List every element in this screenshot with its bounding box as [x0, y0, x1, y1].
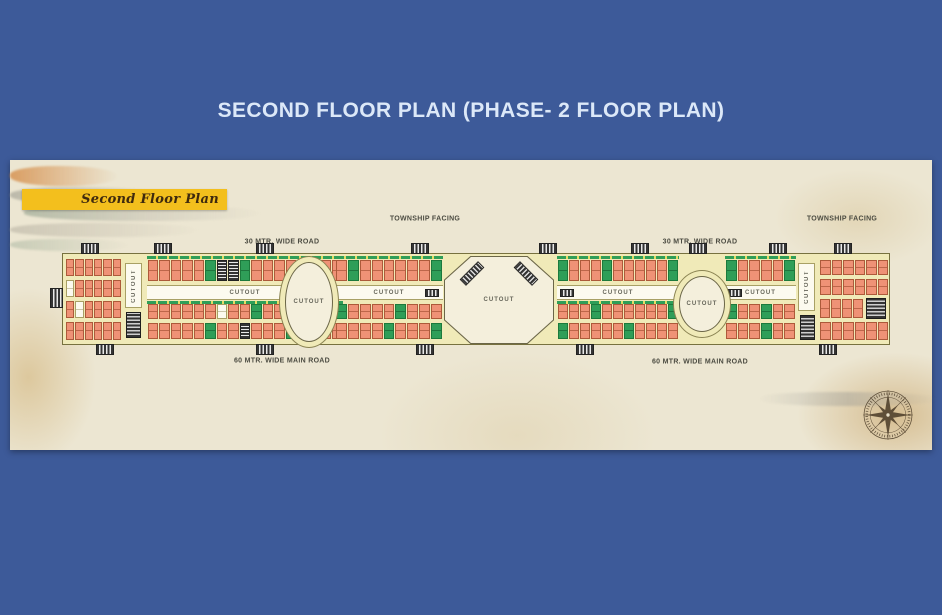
shop-unit: [182, 260, 192, 281]
shop-unit: [171, 323, 181, 339]
cutout-corridor: CUTOUT: [725, 285, 796, 300]
shop-unit: [820, 260, 831, 275]
shop-unit: [274, 323, 284, 339]
shop-band: [65, 300, 122, 319]
shop-unit: [407, 323, 418, 339]
shop-band: [557, 303, 679, 320]
cutout-label: CUTOUT: [131, 269, 137, 303]
shop-unit: [646, 323, 656, 339]
shop-unit: [761, 260, 772, 281]
shop-unit: [580, 323, 590, 339]
shop-unit: [75, 259, 83, 276]
shop-unit: [878, 322, 889, 340]
shop-unit: [726, 304, 737, 319]
shop-unit: [832, 260, 843, 275]
shop-unit: [395, 260, 406, 281]
shop-unit: [558, 260, 568, 281]
shop-unit: [103, 280, 111, 297]
shop-unit: [240, 323, 250, 339]
shop-band: [819, 259, 889, 276]
shop-unit: [94, 301, 102, 318]
shop-unit: [113, 301, 121, 318]
shop-unit: [228, 260, 238, 281]
shop-unit: [784, 260, 795, 281]
shop-unit: [726, 323, 737, 339]
watercolor-stroke: [10, 166, 118, 186]
shop-unit: [558, 323, 568, 339]
shop-band: [335, 259, 443, 282]
shop-unit: [602, 323, 612, 339]
shop-unit: [749, 323, 760, 339]
shop-unit: [103, 322, 111, 340]
shop-unit: [159, 323, 169, 339]
shop-unit: [113, 259, 121, 276]
shop-band: [819, 298, 864, 319]
shop-unit: [613, 304, 623, 319]
shop-unit: [580, 260, 590, 281]
shop-unit: [85, 322, 93, 340]
shop-unit: [217, 323, 227, 339]
shop-band: [725, 322, 796, 340]
shop-unit: [113, 322, 121, 340]
stair-core: [126, 312, 141, 338]
plan-title-text: Second Floor Plan: [81, 192, 219, 207]
shop-unit: [171, 260, 181, 281]
shop-unit: [591, 260, 601, 281]
shop-unit: [171, 304, 181, 319]
shop-unit: [228, 323, 238, 339]
shop-unit: [251, 260, 261, 281]
shop-unit: [372, 323, 383, 339]
shop-unit: [103, 301, 111, 318]
floor-plan-canvas: Second Floor Plan TOWNSHIP FACING TOWNSH…: [10, 160, 932, 450]
shop-unit: [761, 304, 772, 319]
passage-label-strip: [557, 256, 679, 259]
cutout-corridor: CUTOUT: [335, 285, 443, 300]
cutout-label: CUTOUT: [484, 297, 515, 303]
shop-unit: [657, 260, 667, 281]
cutout-label: CUTOUT: [745, 290, 776, 296]
shop-unit: [749, 304, 760, 319]
cutout-octagon: CUTOUT: [444, 256, 554, 344]
passage-label-strip: [335, 256, 443, 259]
stair-block-icon: [154, 243, 172, 254]
shop-unit: [66, 259, 74, 276]
cutout-label: CUTOUT: [294, 299, 325, 305]
stair-ramp-icon: [460, 261, 485, 286]
shop-unit: [384, 323, 395, 339]
shop-unit: [217, 304, 227, 319]
shop-unit: [384, 260, 395, 281]
shop-unit: [613, 260, 623, 281]
shop-unit: [832, 322, 843, 340]
stair-block-icon: [411, 243, 429, 254]
shop-unit: [66, 280, 74, 297]
shop-unit: [395, 304, 406, 319]
shop-unit: [761, 323, 772, 339]
shop-unit: [148, 323, 158, 339]
shop-unit: [726, 260, 737, 281]
shop-unit: [419, 304, 430, 319]
shop-unit: [431, 323, 442, 339]
shop-unit: [360, 260, 371, 281]
road-60m-label-right: 60 MTR. WIDE MAIN ROAD: [652, 359, 748, 366]
page-title: SECOND FLOOR PLAN (PHASE- 2 FLOOR PLAN): [0, 99, 942, 123]
shop-unit: [668, 323, 678, 339]
stair-block-icon: [819, 344, 837, 355]
shop-band: [335, 303, 443, 320]
shop-unit: [855, 279, 866, 295]
shop-unit: [182, 323, 192, 339]
shop-band: [65, 258, 122, 277]
stair-block-icon: [689, 243, 707, 254]
stair-block-icon: [539, 243, 557, 254]
shop-unit: [75, 301, 83, 318]
stair-block-icon: [256, 243, 274, 254]
shop-unit: [843, 279, 854, 295]
shop-unit: [878, 279, 889, 295]
cutout-label: CUTOUT: [804, 270, 810, 304]
shop-unit: [646, 260, 656, 281]
plan-title-banner: Second Floor Plan: [22, 189, 227, 210]
township-facing-label-left: TOWNSHIP FACING: [390, 216, 460, 223]
shop-unit: [855, 322, 866, 340]
shop-unit: [866, 322, 877, 340]
shop-unit: [749, 260, 760, 281]
shop-unit: [635, 323, 645, 339]
shop-unit: [384, 304, 395, 319]
shop-unit: [217, 260, 227, 281]
road-60m-label-left: 60 MTR. WIDE MAIN ROAD: [234, 358, 330, 365]
shop-unit: [194, 304, 204, 319]
shop-unit: [159, 260, 169, 281]
shop-unit: [194, 260, 204, 281]
township-facing-label-right: TOWNSHIP FACING: [807, 216, 877, 223]
shop-unit: [182, 304, 192, 319]
shop-unit: [668, 260, 678, 281]
shop-unit: [113, 280, 121, 297]
page: { "page": { "title": "SECOND FLOOR PLAN …: [0, 0, 942, 615]
stair-block-icon: [631, 243, 649, 254]
shop-unit: [558, 304, 568, 319]
shop-unit: [580, 304, 590, 319]
shop-band: [65, 279, 122, 298]
shop-unit: [94, 322, 102, 340]
shop-unit: [635, 304, 645, 319]
shop-unit: [784, 304, 795, 319]
shop-band: [65, 321, 122, 341]
shop-unit: [738, 260, 749, 281]
shop-unit: [75, 322, 83, 340]
shop-unit: [205, 323, 215, 339]
cutout-vertical-strip: CUTOUT: [798, 263, 815, 311]
shop-unit: [657, 323, 667, 339]
shop-unit: [855, 260, 866, 275]
compass-rose-icon: [862, 389, 914, 441]
lift-core: [866, 298, 886, 319]
shop-unit: [75, 280, 83, 297]
shop-unit: [159, 304, 169, 319]
stair-block-icon: [769, 243, 787, 254]
shop-unit: [431, 260, 442, 281]
shop-unit: [94, 280, 102, 297]
shop-unit: [194, 323, 204, 339]
shop-unit: [419, 323, 430, 339]
cutout-label: CUTOUT: [687, 301, 718, 307]
shop-unit: [336, 304, 347, 319]
shop-band: [557, 322, 679, 340]
shop-unit: [228, 304, 238, 319]
shop-unit: [240, 304, 250, 319]
shop-unit: [348, 323, 359, 339]
shop-unit: [773, 304, 784, 319]
stair-block-icon: [728, 289, 742, 297]
stair-block-icon: [50, 288, 63, 308]
shop-unit: [66, 301, 74, 318]
shop-unit: [263, 260, 273, 281]
shop-unit: [85, 301, 93, 318]
shop-unit: [348, 260, 359, 281]
shop-unit: [360, 323, 371, 339]
shop-unit: [831, 299, 841, 318]
shop-unit: [407, 304, 418, 319]
shop-unit: [866, 279, 877, 295]
cutout-oval-right: CUTOUT: [679, 276, 725, 332]
stair-block-icon: [560, 289, 574, 297]
shop-unit: [591, 323, 601, 339]
shop-unit: [866, 260, 877, 275]
shop-unit: [820, 322, 831, 340]
building-strip: CUTOUT CUTOUT CUTOUT CUTOUT CUTOUT CUTOU…: [62, 253, 890, 345]
shop-unit: [407, 260, 418, 281]
shop-unit: [832, 279, 843, 295]
cutout-octagon-floor: CUTOUT: [445, 257, 553, 343]
shop-band: [725, 259, 796, 282]
cutout-corridor: CUTOUT: [557, 285, 679, 300]
shop-unit: [336, 323, 347, 339]
shop-unit: [820, 279, 831, 295]
watercolor-stroke: [10, 239, 130, 251]
stair-block-icon: [96, 344, 114, 355]
shop-unit: [240, 260, 250, 281]
shop-unit: [360, 304, 371, 319]
shop-unit: [738, 304, 749, 319]
shop-unit: [784, 323, 795, 339]
shop-unit: [336, 260, 347, 281]
shop-unit: [668, 304, 678, 319]
shop-unit: [613, 323, 623, 339]
shop-unit: [624, 323, 634, 339]
shop-unit: [602, 304, 612, 319]
shop-unit: [263, 304, 273, 319]
shop-band: [335, 322, 443, 340]
shop-unit: [878, 260, 889, 275]
stair-ramp-icon: [514, 261, 539, 286]
shop-unit: [348, 304, 359, 319]
shop-unit: [419, 260, 430, 281]
cutout-label: CUTOUT: [230, 290, 261, 296]
stair-block-icon: [576, 344, 594, 355]
shop-unit: [624, 260, 634, 281]
shop-unit: [274, 304, 284, 319]
passage-label-strip: [725, 256, 796, 259]
shop-band: [819, 278, 889, 296]
shop-unit: [569, 260, 579, 281]
shop-unit: [591, 304, 601, 319]
shop-unit: [85, 259, 93, 276]
shop-unit: [85, 280, 93, 297]
shop-unit: [94, 259, 102, 276]
shop-unit: [251, 304, 261, 319]
shop-unit: [103, 259, 111, 276]
cutout-label: CUTOUT: [374, 290, 405, 296]
shop-unit: [635, 260, 645, 281]
shop-unit: [842, 299, 852, 318]
passage-label-strip: [147, 256, 343, 259]
shop-unit: [602, 260, 612, 281]
shop-unit: [205, 260, 215, 281]
shop-band: [725, 303, 796, 320]
shop-unit: [251, 323, 261, 339]
shop-unit: [372, 304, 383, 319]
shop-unit: [843, 260, 854, 275]
watercolor-stroke: [10, 223, 200, 237]
stair-block-icon: [416, 344, 434, 355]
shop-unit: [372, 260, 383, 281]
shop-unit: [820, 299, 830, 318]
shop-unit: [148, 304, 158, 319]
stair-block-icon: [256, 344, 274, 355]
stair-block-icon: [425, 289, 439, 297]
cutout-oval-left: CUTOUT: [285, 262, 333, 342]
shop-unit: [657, 304, 667, 319]
shop-unit: [431, 304, 442, 319]
shop-unit: [624, 304, 634, 319]
passage-label-strip: [557, 301, 679, 304]
shop-unit: [569, 323, 579, 339]
shop-unit: [843, 322, 854, 340]
shop-unit: [66, 322, 74, 340]
shop-band: [819, 321, 889, 341]
shop-unit: [773, 260, 784, 281]
stair-block-icon: [834, 243, 852, 254]
shop-unit: [853, 299, 863, 318]
shop-unit: [205, 304, 215, 319]
cutout-label: CUTOUT: [603, 290, 634, 296]
shop-unit: [646, 304, 656, 319]
shop-unit: [148, 260, 158, 281]
stair-core: [800, 315, 815, 340]
shop-unit: [395, 323, 406, 339]
shop-unit: [773, 323, 784, 339]
shop-unit: [569, 304, 579, 319]
shop-unit: [274, 260, 284, 281]
shop-unit: [263, 323, 273, 339]
shop-band: [557, 259, 679, 282]
shop-unit: [738, 323, 749, 339]
stair-block-icon: [81, 243, 99, 254]
cutout-vertical-strip: CUTOUT: [125, 263, 142, 308]
